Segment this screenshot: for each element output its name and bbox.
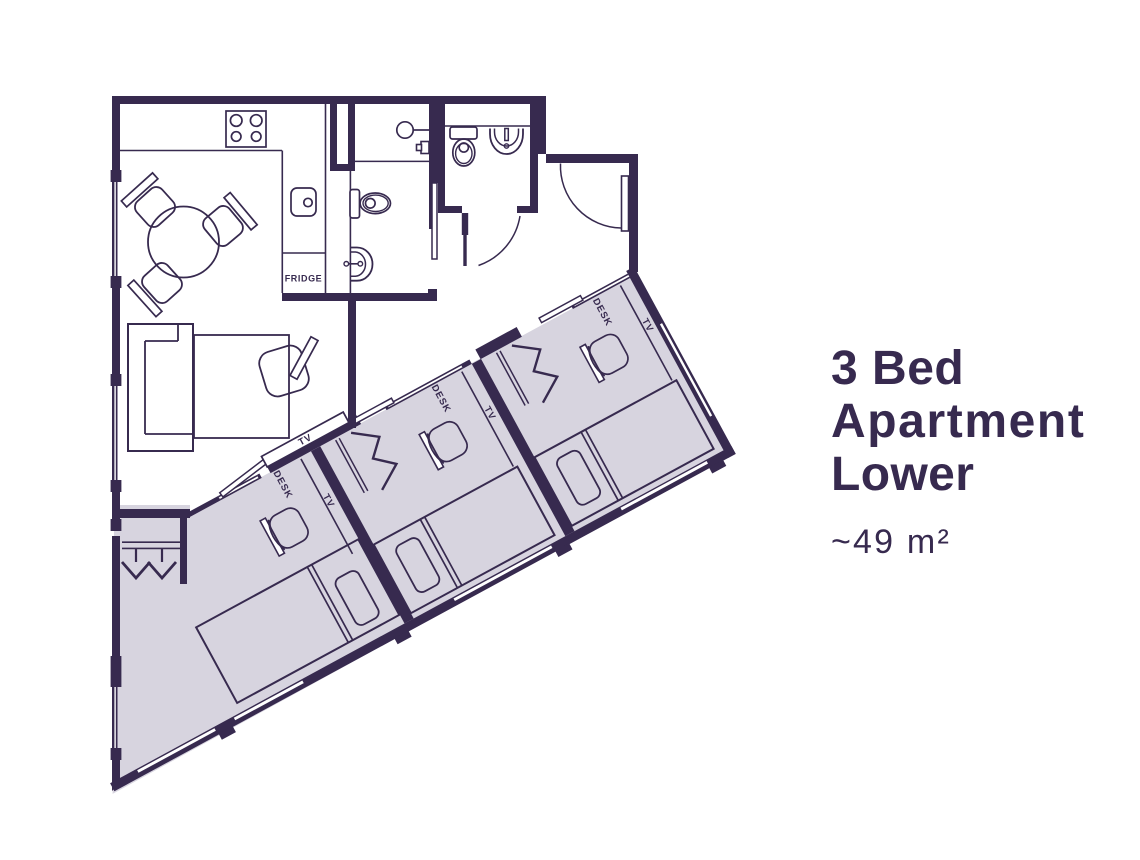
- svg-text:~49 m²: ~49 m²: [831, 523, 951, 561]
- svg-text:FRIDGE: FRIDGE: [285, 274, 323, 284]
- svg-text:3 Bed: 3 Bed: [831, 342, 964, 395]
- svg-text:Lower: Lower: [831, 448, 974, 501]
- svg-text:Apartment: Apartment: [831, 395, 1085, 448]
